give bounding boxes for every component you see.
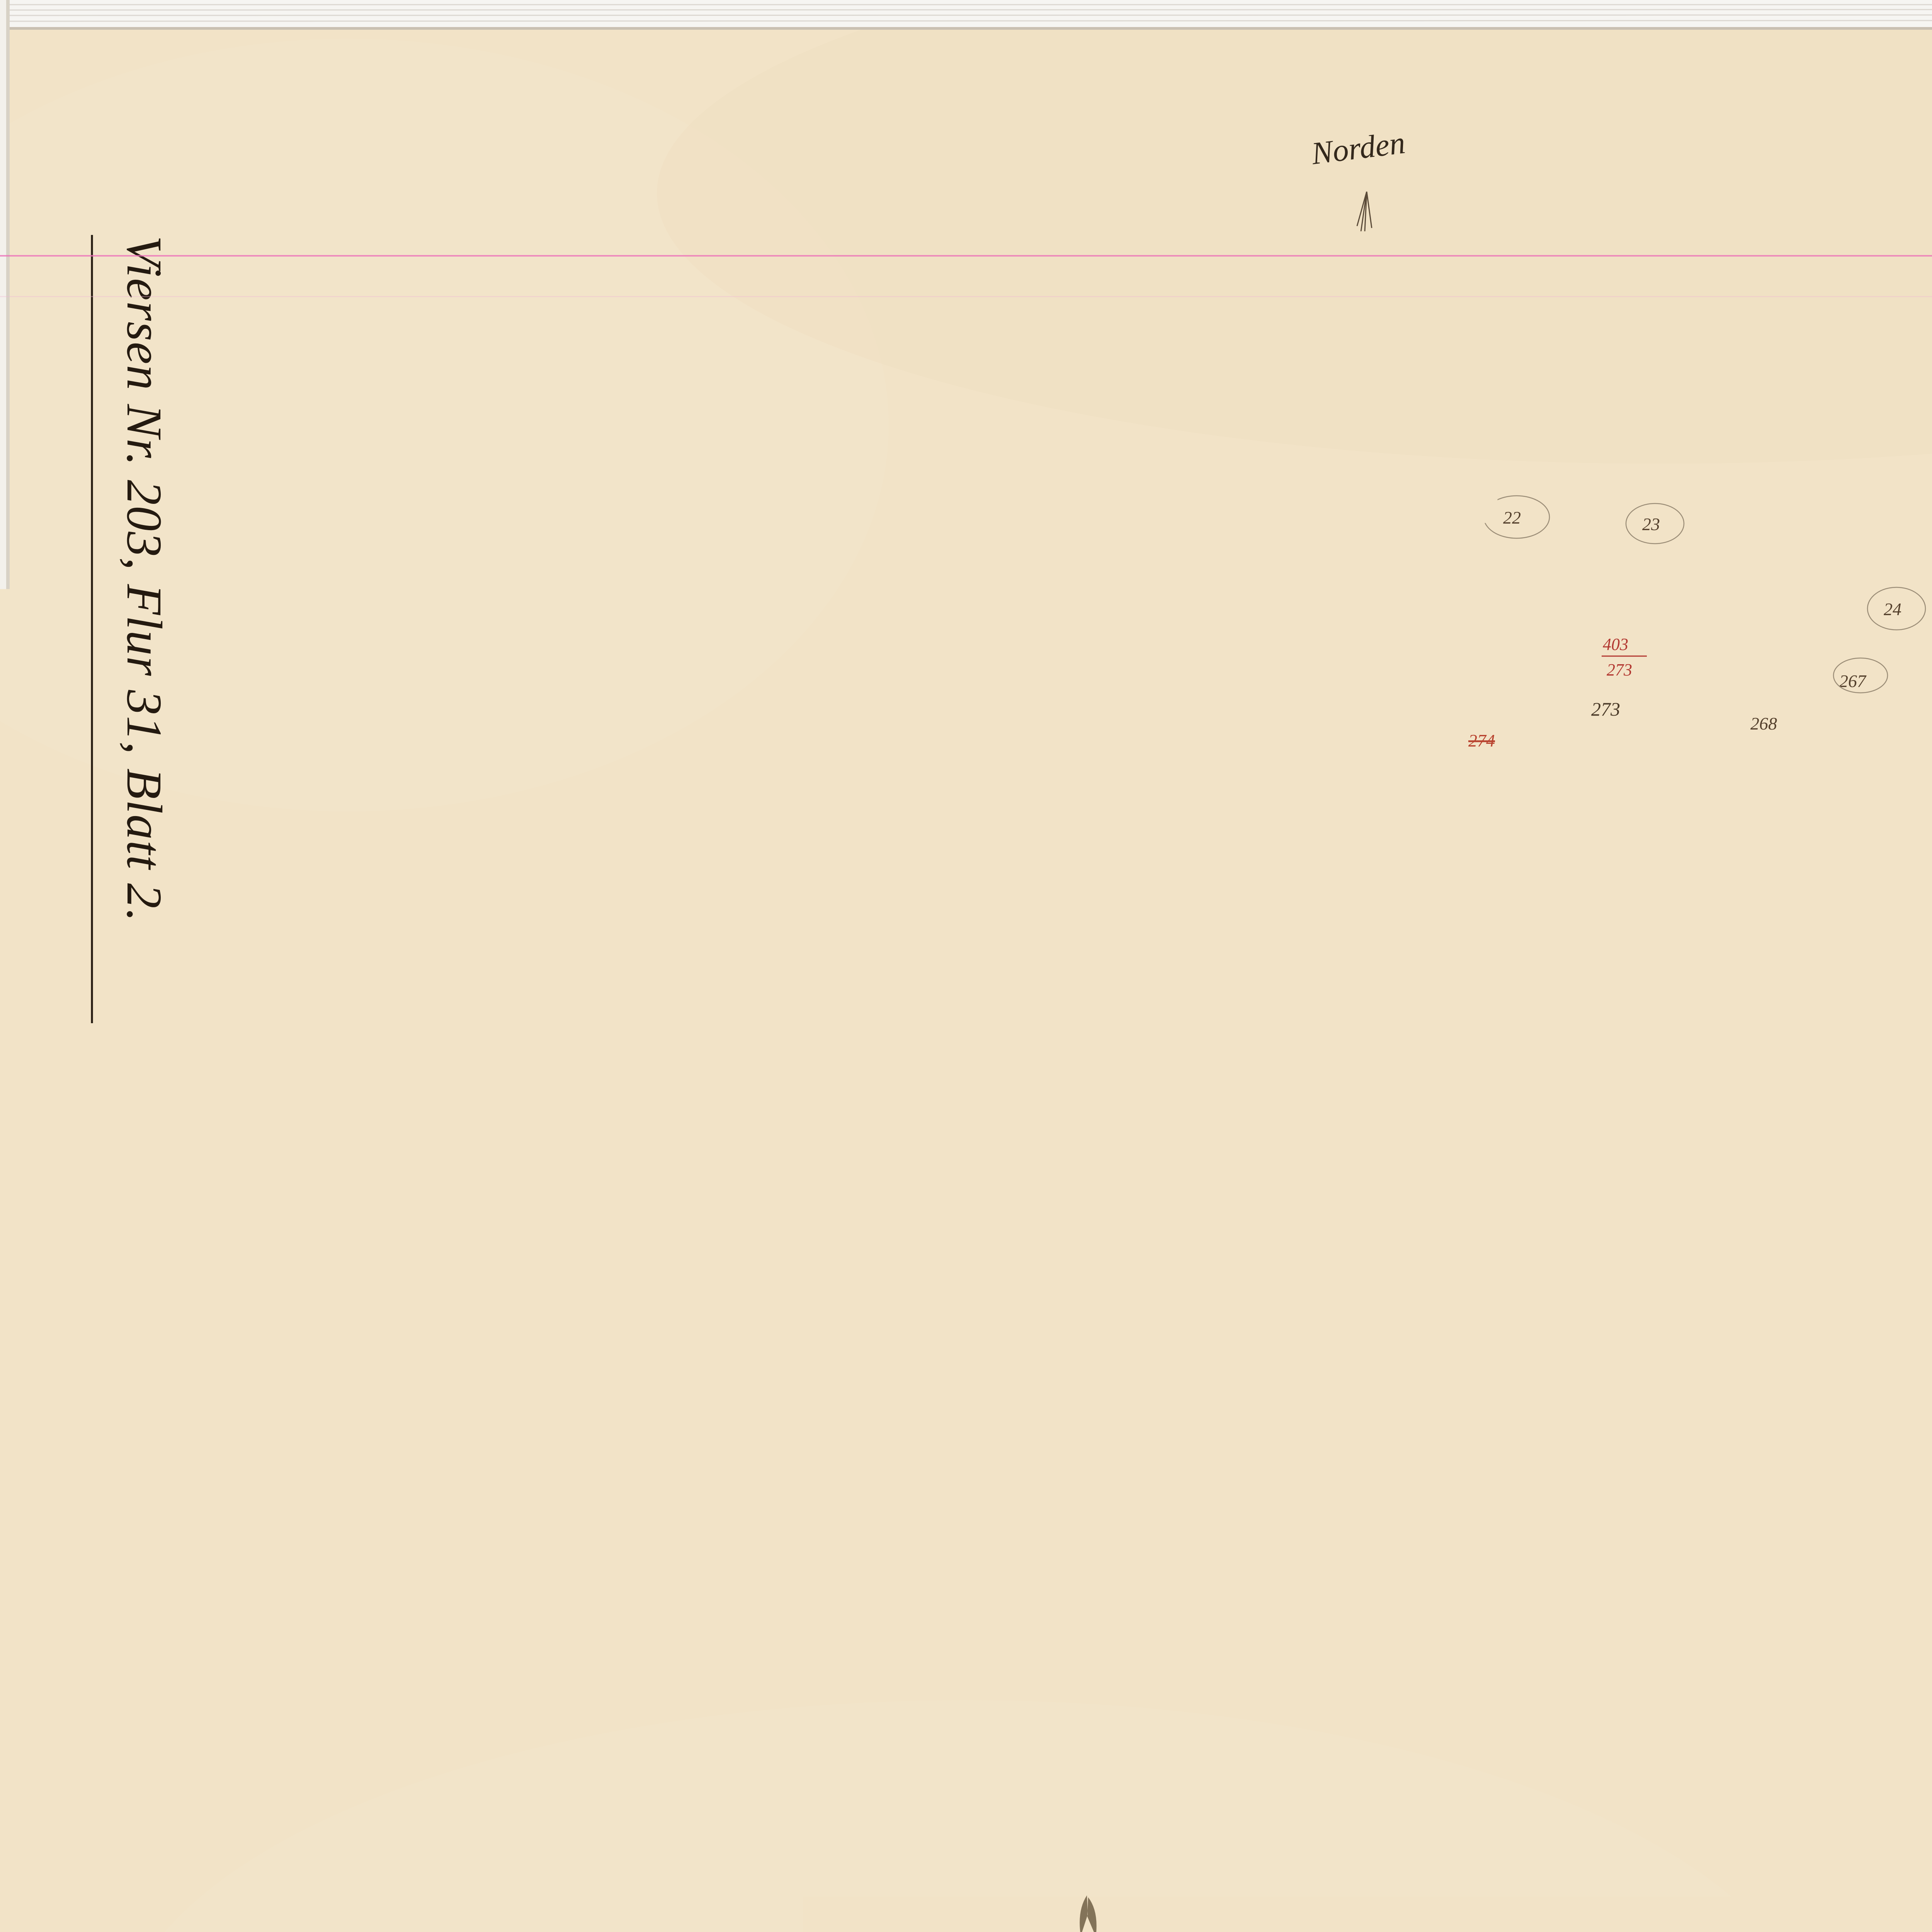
svg-text:24: 24: [1884, 599, 1901, 619]
svg-text:230: 230: [1895, 1236, 1922, 1256]
svg-text:220: 220: [1410, 1054, 1436, 1073]
svg-text:232: 232: [1766, 1157, 1795, 1179]
svg-text:228: 228: [1763, 1223, 1789, 1242]
svg-text:32: 32: [999, 658, 1065, 731]
svg-text:F: F: [386, 644, 422, 708]
svg-text:229: 229: [1842, 1462, 1868, 1481]
svg-text:Gemarkung: Gemarkung: [397, 1646, 547, 1681]
svg-text:276: 276: [956, 925, 981, 944]
svg-text:Viersen Nr. 203, Flur 31, Blat: Viersen Nr. 203, Flur 31, Blatt 2.: [116, 236, 172, 922]
svg-text:513: 513: [1738, 942, 1764, 961]
svg-text:278: 278: [949, 1051, 975, 1071]
svg-text:487: 487: [1287, 995, 1314, 1014]
svg-text:204: 204: [1699, 1807, 1726, 1827]
svg-text:273: 273: [1591, 698, 1620, 720]
svg-text:285: 285: [634, 827, 660, 846]
svg-text:722: 722: [1838, 1414, 1864, 1433]
svg-text:267: 267: [1839, 671, 1867, 691]
svg-text:227: 227: [1651, 1137, 1677, 1156]
svg-text:210: 210: [1427, 1878, 1453, 1897]
svg-text:196: 196: [1895, 1738, 1922, 1758]
svg-text:l: l: [549, 649, 565, 713]
svg-text:von Dülken: von Dülken: [246, 761, 361, 787]
svg-text:274: 274: [1468, 731, 1495, 750]
svg-text:84/85: 84/85: [804, 1187, 845, 1206]
svg-text:723: 723: [1570, 1651, 1595, 1670]
svg-text:276: 276: [982, 1118, 1008, 1137]
svg-text:539: 539: [662, 1167, 687, 1185]
svg-text:Viersen: Viersen: [637, 1679, 758, 1724]
svg-text:279: 279: [823, 1031, 850, 1051]
svg-text:226: 226: [1738, 966, 1764, 985]
svg-text:538: 538: [652, 876, 675, 893]
svg-text:287: 287: [529, 905, 555, 924]
svg-text:219: 219: [1419, 1027, 1446, 1046]
svg-text:205: 205: [1560, 1846, 1584, 1864]
svg-text:531a: 531a: [525, 826, 565, 848]
svg-text:276: 276: [1138, 936, 1163, 955]
svg-text:271: 271: [1736, 853, 1762, 872]
svg-text:283: 283: [607, 1196, 632, 1215]
svg-text:23: 23: [1642, 514, 1660, 534]
svg-text:200: 200: [1713, 1664, 1739, 1684]
svg-text:216: 216: [1039, 1117, 1065, 1137]
svg-text:268: 268: [1750, 714, 1777, 733]
svg-text:284: 284: [607, 906, 631, 924]
svg-text:289: 289: [247, 1134, 273, 1153]
svg-text:721: 721: [1649, 1112, 1675, 1131]
svg-text:270: 270: [1901, 858, 1928, 878]
svg-text:Flur XXXI: Flur XXXI: [426, 1741, 670, 1799]
svg-text:221: 221: [1529, 1104, 1556, 1124]
svg-text:269: 269: [1817, 787, 1844, 807]
svg-text:443: 443: [1655, 1444, 1680, 1463]
svg-text:287: 287: [654, 895, 678, 912]
svg-text:482: 482: [1558, 1826, 1582, 1844]
svg-text:Blatt 2.: Blatt 2.: [478, 1878, 578, 1916]
svg-text:283: 283: [492, 1201, 517, 1220]
svg-text:289: 289: [312, 1119, 338, 1138]
svg-text:289: 289: [414, 1128, 440, 1147]
svg-text:234: 234: [1876, 951, 1903, 971]
svg-text:Nr. 203.: Nr. 203.: [814, 1683, 916, 1718]
svg-text:483: 483: [1454, 1927, 1478, 1932]
svg-text:403: 403: [1603, 635, 1628, 654]
svg-text:1144: 1144: [1840, 1437, 1870, 1454]
svg-text:289: 289: [335, 1064, 361, 1084]
svg-text:Noppdorf: Noppdorf: [1755, 1026, 1932, 1083]
svg-text:288: 288: [540, 979, 566, 998]
svg-text:201: 201: [1572, 1675, 1597, 1694]
svg-text:532: 532: [526, 882, 551, 901]
svg-text:386: 386: [980, 1093, 1006, 1112]
svg-text:533: 533: [538, 956, 563, 975]
svg-text:275: 275: [1080, 913, 1107, 933]
svg-text:717: 717: [1653, 1422, 1679, 1440]
svg-text:283: 283: [549, 1197, 575, 1216]
svg-text:540: 540: [605, 1170, 630, 1189]
svg-text:225: 225: [1562, 946, 1588, 965]
svg-text:276: 276: [986, 839, 1013, 859]
svg-text:211: 211: [1401, 1717, 1425, 1736]
svg-text:212: 212: [1656, 1467, 1681, 1486]
svg-text:286: 286: [529, 850, 559, 872]
svg-text:283: 283: [663, 1192, 689, 1211]
svg-text:488: 488: [1135, 915, 1161, 934]
svg-text:22: 22: [1503, 508, 1521, 527]
svg-text:550: 550: [1654, 1782, 1678, 1800]
svg-text:281: 281: [723, 823, 750, 843]
svg-text:536: 536: [575, 879, 598, 897]
svg-text:217: 217: [1291, 1017, 1317, 1036]
svg-text:223: 223: [1576, 1100, 1602, 1120]
svg-text:In 2 Blättern.: In 2 Blättern.: [449, 1802, 602, 1833]
svg-text:206: 206: [1484, 1781, 1510, 1801]
svg-text:224: 224: [1566, 1034, 1592, 1054]
svg-text:205: 205: [1655, 1802, 1680, 1820]
svg-text:203: 203: [1644, 1738, 1671, 1757]
svg-text:534: 534: [490, 1176, 515, 1195]
svg-text:365: 365: [410, 1104, 436, 1122]
svg-text:218: 218: [1213, 939, 1239, 959]
svg-text:280: 280: [855, 827, 881, 847]
svg-text:247: 247: [1228, 1062, 1255, 1082]
svg-text:r: r: [825, 658, 851, 722]
svg-text:724: 724: [1398, 1692, 1423, 1711]
svg-text:282: 282: [702, 1048, 729, 1067]
svg-text:S. neues Planblatt 54.: S. neues Planblatt 54.: [1508, 1274, 1881, 1315]
svg-text:489: 489: [954, 901, 980, 920]
svg-text:284: 284: [575, 899, 598, 916]
svg-text:537: 537: [607, 887, 631, 905]
svg-text:202: 202: [1697, 1748, 1724, 1768]
svg-text:366: 366: [309, 1095, 335, 1114]
svg-text:367: 367: [247, 1110, 274, 1129]
svg-text:Viersen: Viersen: [520, 1539, 750, 1604]
svg-text:272: 272: [1655, 850, 1681, 870]
svg-text:283: 283: [548, 1044, 575, 1063]
svg-text:273: 273: [1607, 660, 1632, 679]
svg-text:213: 213: [1375, 1233, 1401, 1253]
svg-text:222: 222: [1546, 1233, 1573, 1253]
svg-text:u: u: [707, 655, 739, 719]
svg-text:535: 535: [548, 1172, 573, 1191]
